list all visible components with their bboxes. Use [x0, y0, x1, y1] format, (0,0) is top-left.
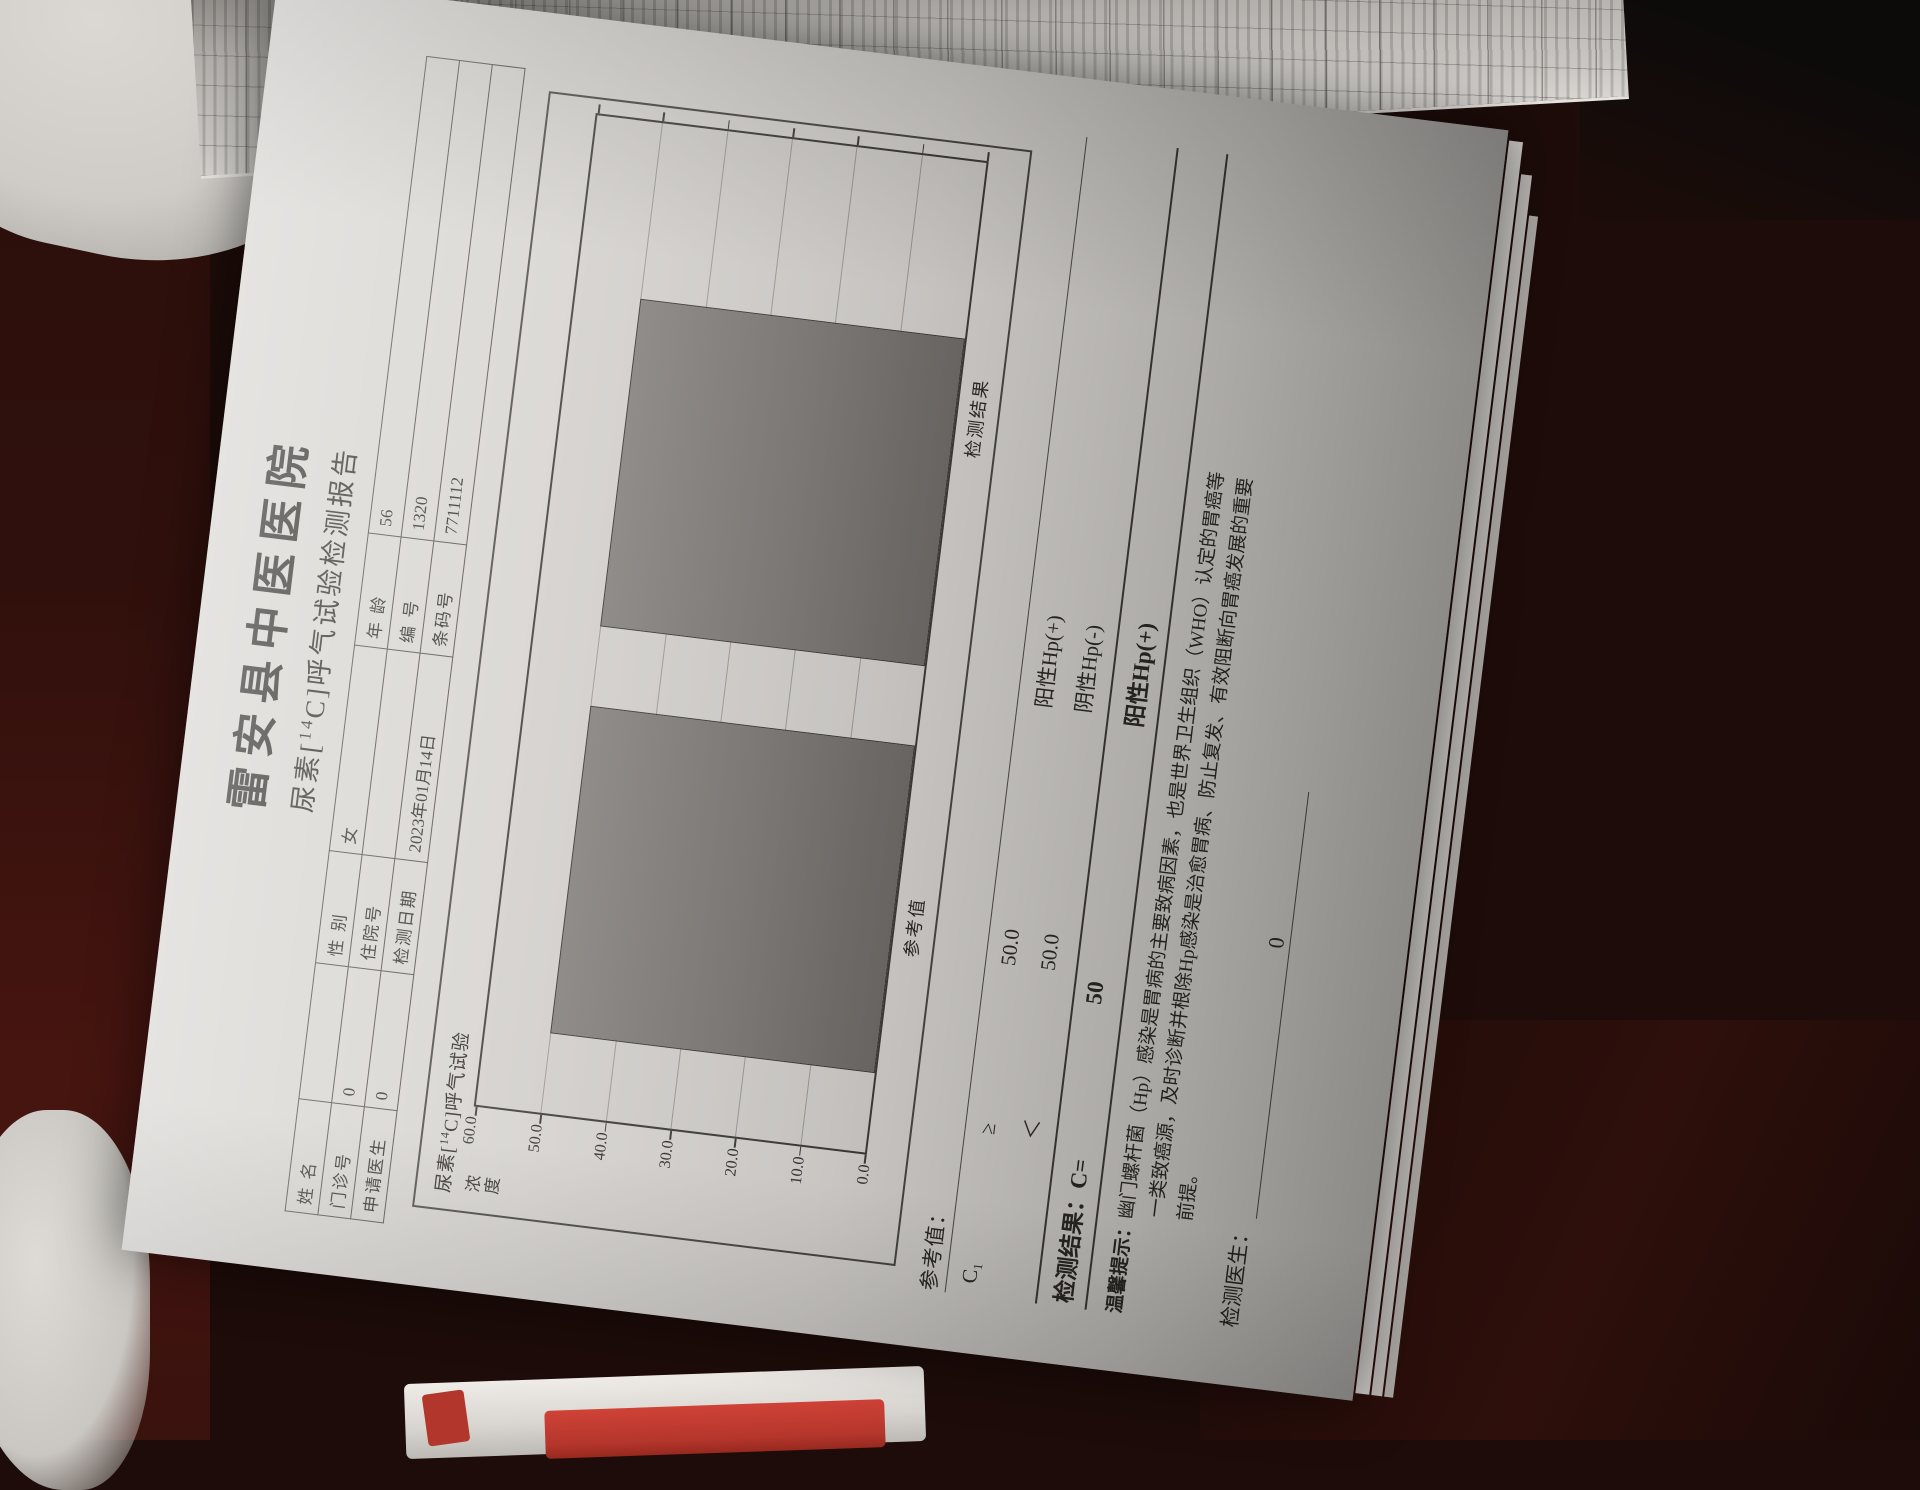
result-value: 50: [1081, 725, 1149, 1007]
y-tick-label: 40.0: [591, 1131, 612, 1161]
subtitle-pre: 尿素[: [287, 739, 326, 814]
axis-tick: [727, 120, 730, 129]
axis-tick: [987, 152, 990, 161]
axis-tick: [663, 112, 666, 121]
y-tick-label: 50.0: [526, 1123, 547, 1153]
axis-tick: [857, 136, 860, 145]
axis-tick: [792, 128, 795, 137]
bar-reference-value: [551, 706, 915, 1073]
subtitle-isotope: 14: [295, 716, 317, 741]
report-content: 雷安县中医医院 尿素[14C]呼气试验检测报告 姓 名 性 别 女 年 龄 56…: [162, 41, 1385, 1329]
chart-title-pre: 尿素[: [433, 1144, 460, 1194]
red-object-small: [422, 1389, 471, 1446]
chart-title-isotope: 14: [438, 1130, 453, 1145]
y-tick-label: 10.0: [788, 1156, 809, 1186]
doctor-signature-value: 0: [1263, 936, 1290, 950]
report-page: 雷安县中医医院 尿素[14C]呼气试验检测报告 姓 名 性 别 女 年 龄 56…: [122, 0, 1509, 1401]
y-tick-label: 30.0: [657, 1139, 678, 1169]
axis-tick: [922, 144, 925, 153]
white-cloth-bottom-left: [0, 1110, 150, 1490]
report-sheet-rotated: 雷安县中医医院 尿素[14C]呼气试验检测报告 姓 名 性 别 女 年 龄 56…: [122, 0, 1509, 1401]
axis-tick: [598, 104, 601, 113]
doctor-label: 检测医生：: [1214, 1221, 1257, 1329]
y-tick-label: 0.0: [854, 1164, 874, 1186]
bar-test-result: [600, 299, 964, 666]
y-tick-label: 20.0: [722, 1148, 743, 1178]
desk-surface-top-right: [1580, 0, 1920, 220]
y-tick-label: 60.0: [460, 1115, 481, 1145]
